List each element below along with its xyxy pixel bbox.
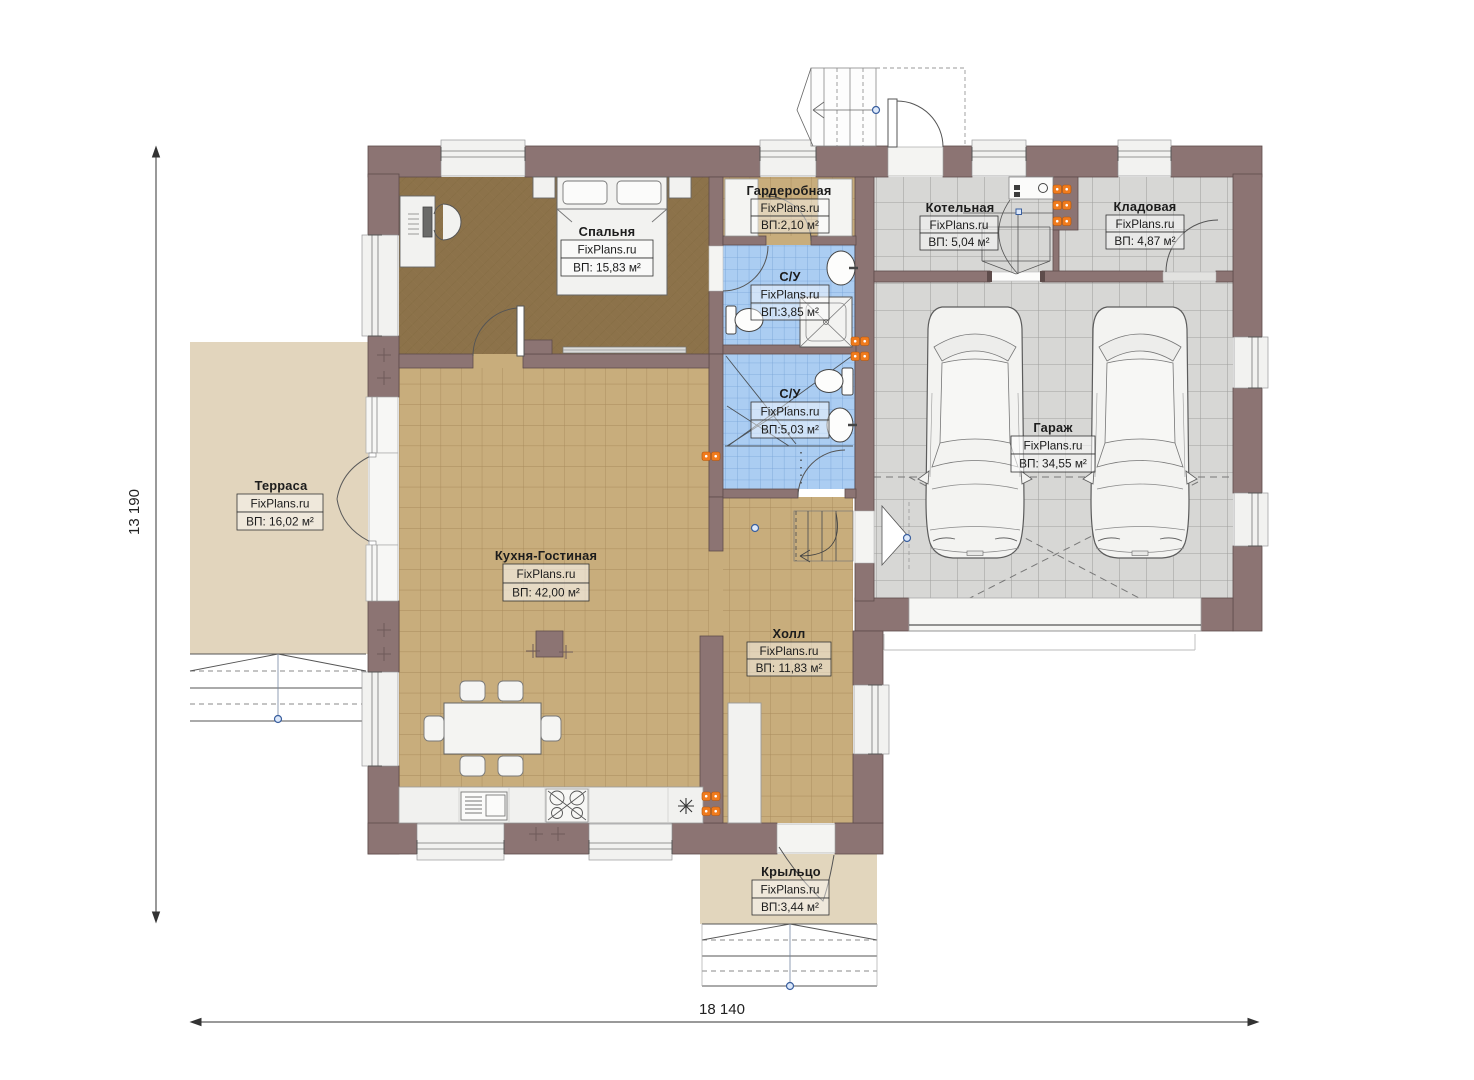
svg-text:ВП: 15,83 м²: ВП: 15,83 м² <box>573 261 641 275</box>
svg-text:ВП:5,03 м²: ВП:5,03 м² <box>761 423 819 437</box>
svg-text:ВП:2,10 м²: ВП:2,10 м² <box>761 218 819 232</box>
svg-text:FixPlans.ru: FixPlans.ru <box>929 218 988 232</box>
svg-text:FixPlans.ru: FixPlans.ru <box>759 644 818 658</box>
svg-text:FixPlans.ru: FixPlans.ru <box>760 201 819 215</box>
svg-text:Котельная: Котельная <box>926 200 995 215</box>
svg-text:Крыльцо: Крыльцо <box>761 864 821 879</box>
svg-text:Кухня-Гостиная: Кухня-Гостиная <box>495 548 597 563</box>
svg-text:FixPlans.ru: FixPlans.ru <box>1115 217 1174 231</box>
svg-text:ВП: 4,87 м²: ВП: 4,87 м² <box>1114 234 1175 248</box>
svg-text:FixPlans.ru: FixPlans.ru <box>516 567 575 581</box>
svg-text:С/У: С/У <box>779 269 801 284</box>
svg-text:ВП:3,44 м²: ВП:3,44 м² <box>761 900 819 914</box>
svg-text:ВП: 11,83 м²: ВП: 11,83 м² <box>756 661 823 675</box>
svg-text:Холл: Холл <box>773 626 806 641</box>
svg-text:ВП: 5,04 м²: ВП: 5,04 м² <box>928 235 989 249</box>
svg-text:FixPlans.ru: FixPlans.ru <box>760 405 819 419</box>
svg-text:ВП: 34,55 м²: ВП: 34,55 м² <box>1019 457 1087 471</box>
svg-text:FixPlans.ru: FixPlans.ru <box>760 288 819 302</box>
svg-text:ВП:3,85 м²: ВП:3,85 м² <box>761 305 819 319</box>
svg-text:С/У: С/У <box>779 386 801 401</box>
svg-text:FixPlans.ru: FixPlans.ru <box>250 497 309 511</box>
svg-text:Кладовая: Кладовая <box>1114 199 1177 214</box>
svg-text:FixPlans.ru: FixPlans.ru <box>1023 439 1082 453</box>
svg-text:FixPlans.ru: FixPlans.ru <box>760 883 819 897</box>
svg-text:ВП: 16,02 м²: ВП: 16,02 м² <box>246 515 314 529</box>
svg-text:Гардеробная: Гардеробная <box>747 183 832 198</box>
svg-text:ВП: 42,00 м²: ВП: 42,00 м² <box>512 586 580 600</box>
svg-text:Спальня: Спальня <box>579 224 636 239</box>
svg-text:Терраса: Терраса <box>255 478 309 493</box>
svg-text:FixPlans.ru: FixPlans.ru <box>577 243 636 257</box>
svg-text:13 190: 13 190 <box>126 489 143 535</box>
svg-text:Гараж: Гараж <box>1033 420 1073 435</box>
svg-text:18 140: 18 140 <box>699 1001 745 1018</box>
